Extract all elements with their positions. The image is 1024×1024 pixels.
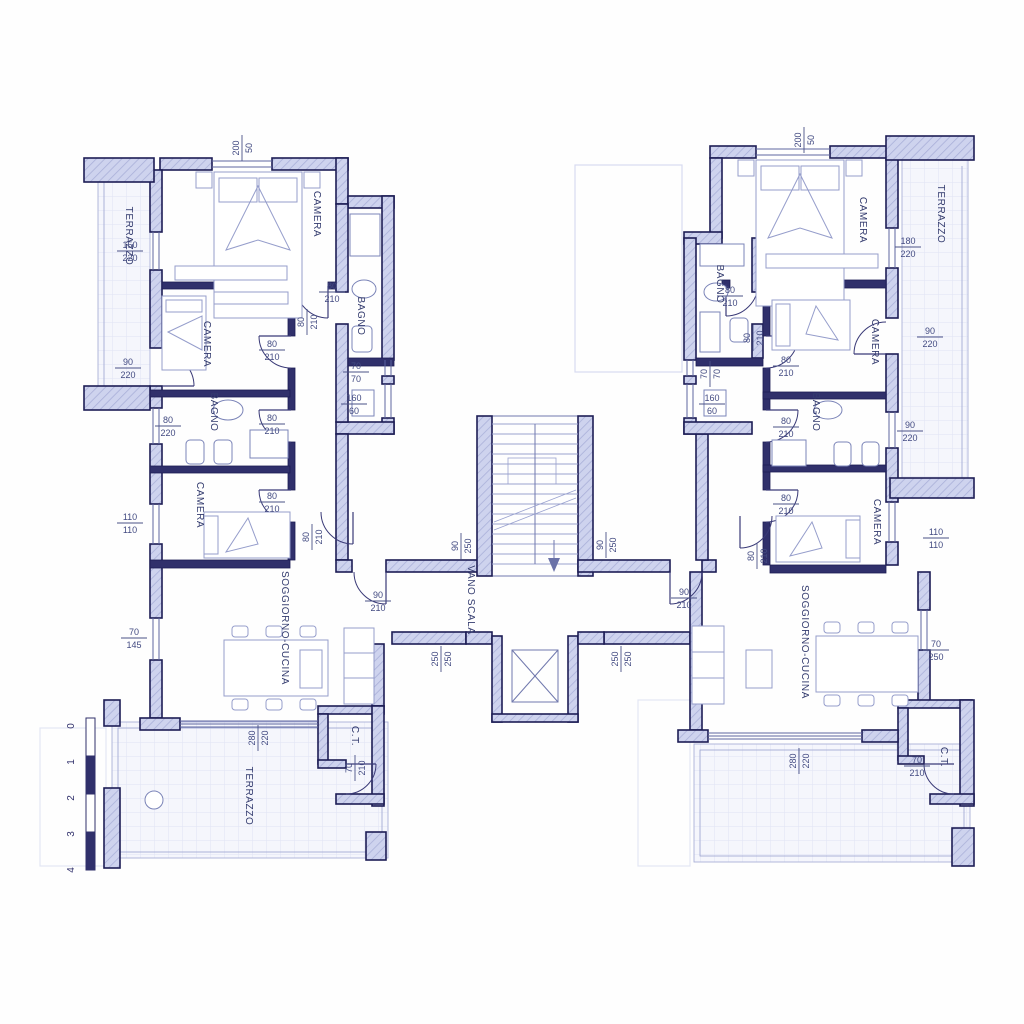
dining-table [816,636,918,692]
nightstand [196,172,212,188]
label-left-bagno1: BAGNO [355,296,366,335]
svg-text:90: 90 [925,326,935,336]
svg-text:150: 150 [122,240,137,250]
svg-text:70: 70 [931,639,941,649]
svg-text:80: 80 [746,551,756,561]
svg-text:210: 210 [778,506,793,516]
svg-text:70: 70 [129,627,139,637]
dim-c3: 250250 [430,646,453,672]
svg-text:90: 90 [679,587,689,597]
svg-text:90: 90 [905,420,915,430]
svg-text:210: 210 [309,314,319,329]
svg-text:280: 280 [788,753,798,768]
svg-text:70: 70 [344,763,354,773]
svg-text:210: 210 [722,298,737,308]
svg-text:80: 80 [725,285,735,295]
svg-text:210: 210 [755,330,765,345]
svg-text:80: 80 [742,333,752,343]
chair [892,622,908,633]
right-terrace-bottom [694,744,970,862]
chair [232,699,248,710]
scale-bar: 0 1 2 3 4 [66,718,95,873]
label-left-soggiorno: SOGGIORNO-CUCINA [279,571,290,685]
svg-text:70: 70 [712,369,722,379]
svg-text:220: 220 [801,753,811,768]
dim-r12: 110110 [923,527,949,550]
scale-label-1: 1 [66,759,77,765]
pillow [204,516,218,554]
svg-text:210: 210 [759,548,769,563]
svg-text:220: 220 [120,370,135,380]
bidet-icon [214,440,232,464]
nightstand [304,172,320,188]
toilet-icon [186,440,204,464]
svg-text:210: 210 [357,760,367,775]
svg-text:70: 70 [351,361,361,371]
svg-text:110: 110 [123,525,137,535]
svg-text:110: 110 [929,527,943,537]
svg-text:180: 180 [900,236,915,246]
label-right-bagno2: BAGNO [810,392,821,431]
label-left-camera1: CAMERA [311,191,322,237]
label-left-camera2: CAMERA [201,321,212,367]
svg-text:210: 210 [264,352,279,362]
dim-l11: 80210 [259,491,285,514]
label-right-camera3: CAMERA [871,499,882,545]
svg-text:210: 210 [370,603,385,613]
label-right-ct: C.T. [938,747,949,767]
sofa [344,628,374,704]
dim-l14: 70145 [121,627,147,650]
svg-text:210: 210 [778,368,793,378]
svg-text:250: 250 [610,651,620,666]
toilet-icon [834,442,851,466]
label-vano-scala: VANO SCALA [465,565,476,634]
chair [300,699,316,710]
svg-text:220: 220 [922,339,937,349]
svg-text:220: 220 [122,253,137,263]
dim-c4: 250250 [610,646,633,672]
dim-l12: 110110 [117,512,143,535]
shower [350,214,380,256]
chair [824,622,840,633]
pillow [166,300,202,312]
svg-text:90: 90 [373,590,383,600]
scale-label-4: 4 [66,867,77,873]
svg-text:250: 250 [430,651,440,666]
nightstand [846,160,862,176]
chair [892,695,908,706]
svg-text:220: 220 [900,249,915,259]
dim-l1: 20050 [231,135,254,161]
svg-text:60: 60 [349,406,359,416]
svg-text:110: 110 [929,540,943,550]
pillow [776,304,790,346]
svg-text:70: 70 [912,755,922,765]
chair [266,699,282,710]
label-left-bagno2: BAGNO [208,392,219,431]
svg-text:80: 80 [163,415,173,425]
svg-text:80: 80 [781,416,791,426]
dim-l13: 80210 [301,524,324,550]
label-left-terrazzo2: TERRAZZO [243,767,254,826]
svg-text:90: 90 [123,357,133,367]
svg-text:200: 200 [793,132,803,147]
svg-text:80: 80 [267,491,277,501]
svg-text:280: 280 [247,730,257,745]
scale-label-0: 0 [66,723,77,729]
svg-text:50: 50 [806,135,816,145]
pillow [846,520,860,558]
svg-text:250: 250 [623,651,633,666]
svg-text:250: 250 [608,537,618,552]
elevator [492,636,578,722]
svg-text:80: 80 [781,493,791,503]
wardrobe [766,254,878,268]
svg-text:80: 80 [267,339,277,349]
svg-text:90: 90 [450,541,460,551]
nightstand [738,160,754,176]
svg-text:80: 80 [296,317,306,327]
svg-text:70: 70 [351,374,361,384]
terrace-drain [145,791,163,809]
chair [824,695,840,706]
svg-text:160: 160 [704,393,719,403]
label-right-camera2: CAMERA [869,319,880,365]
dim-c2: 90250 [595,532,618,558]
svg-text:210: 210 [264,504,279,514]
svg-text:220: 220 [902,433,917,443]
svg-text:250: 250 [443,651,453,666]
svg-text:70: 70 [699,369,709,379]
svg-text:80: 80 [267,413,277,423]
sink-icon [352,280,376,298]
stair-core [477,416,716,722]
svg-text:220: 220 [260,730,270,745]
dim-c1: 90250 [450,533,473,559]
shower [772,440,806,466]
svg-text:200: 200 [231,140,241,155]
chair [858,622,874,633]
svg-text:220: 220 [160,428,175,438]
svg-text:210: 210 [676,600,691,610]
floor-plan-drawing: 0 1 2 3 4 TERRAZZO CAMERA BAGNO CAMERA B… [0,0,1024,1024]
label-right-terrazzo: TERRAZZO [935,185,946,244]
dim-l15: 90210 [365,590,391,613]
svg-text:210: 210 [778,429,793,439]
svg-text:80: 80 [781,355,791,365]
floor-plan-canvas: 0 1 2 3 4 TERRAZZO CAMERA BAGNO CAMERA B… [0,0,1024,1024]
svg-text:160: 160 [346,393,361,403]
svg-text:210: 210 [264,426,279,436]
label-left-ct: C.T. [349,726,360,746]
svg-text:210: 210 [909,768,924,778]
label-left-camera3: CAMERA [194,482,205,528]
scale-label-2: 2 [66,795,77,801]
svg-text:250: 250 [463,538,473,553]
svg-text:110: 110 [123,512,137,522]
chair [232,626,248,637]
bathtub-icon [700,312,720,352]
scale-label-3: 3 [66,831,77,837]
stair-direction-arrow [548,540,560,572]
svg-text:210: 210 [324,294,339,304]
svg-text:50: 50 [244,143,254,153]
rug [746,650,772,688]
label-right-soggiorno: SOGGIORNO-CUCINA [799,585,810,699]
shelf [214,292,288,304]
wardrobe [175,266,287,280]
svg-text:210: 210 [314,529,324,544]
svg-text:90: 90 [595,540,605,550]
chair [300,626,316,637]
svg-text:145: 145 [126,640,141,650]
dim-r9: 80210 [773,416,799,439]
svg-text:60: 60 [707,406,717,416]
svg-text:80: 80 [301,532,311,542]
svg-text:250: 250 [928,652,943,662]
shelf [700,244,744,266]
label-right-camera1: CAMERA [857,197,868,243]
chair [858,695,874,706]
bidet-icon [862,442,879,466]
svg-text:80: 80 [327,281,337,291]
sofa [692,626,724,704]
